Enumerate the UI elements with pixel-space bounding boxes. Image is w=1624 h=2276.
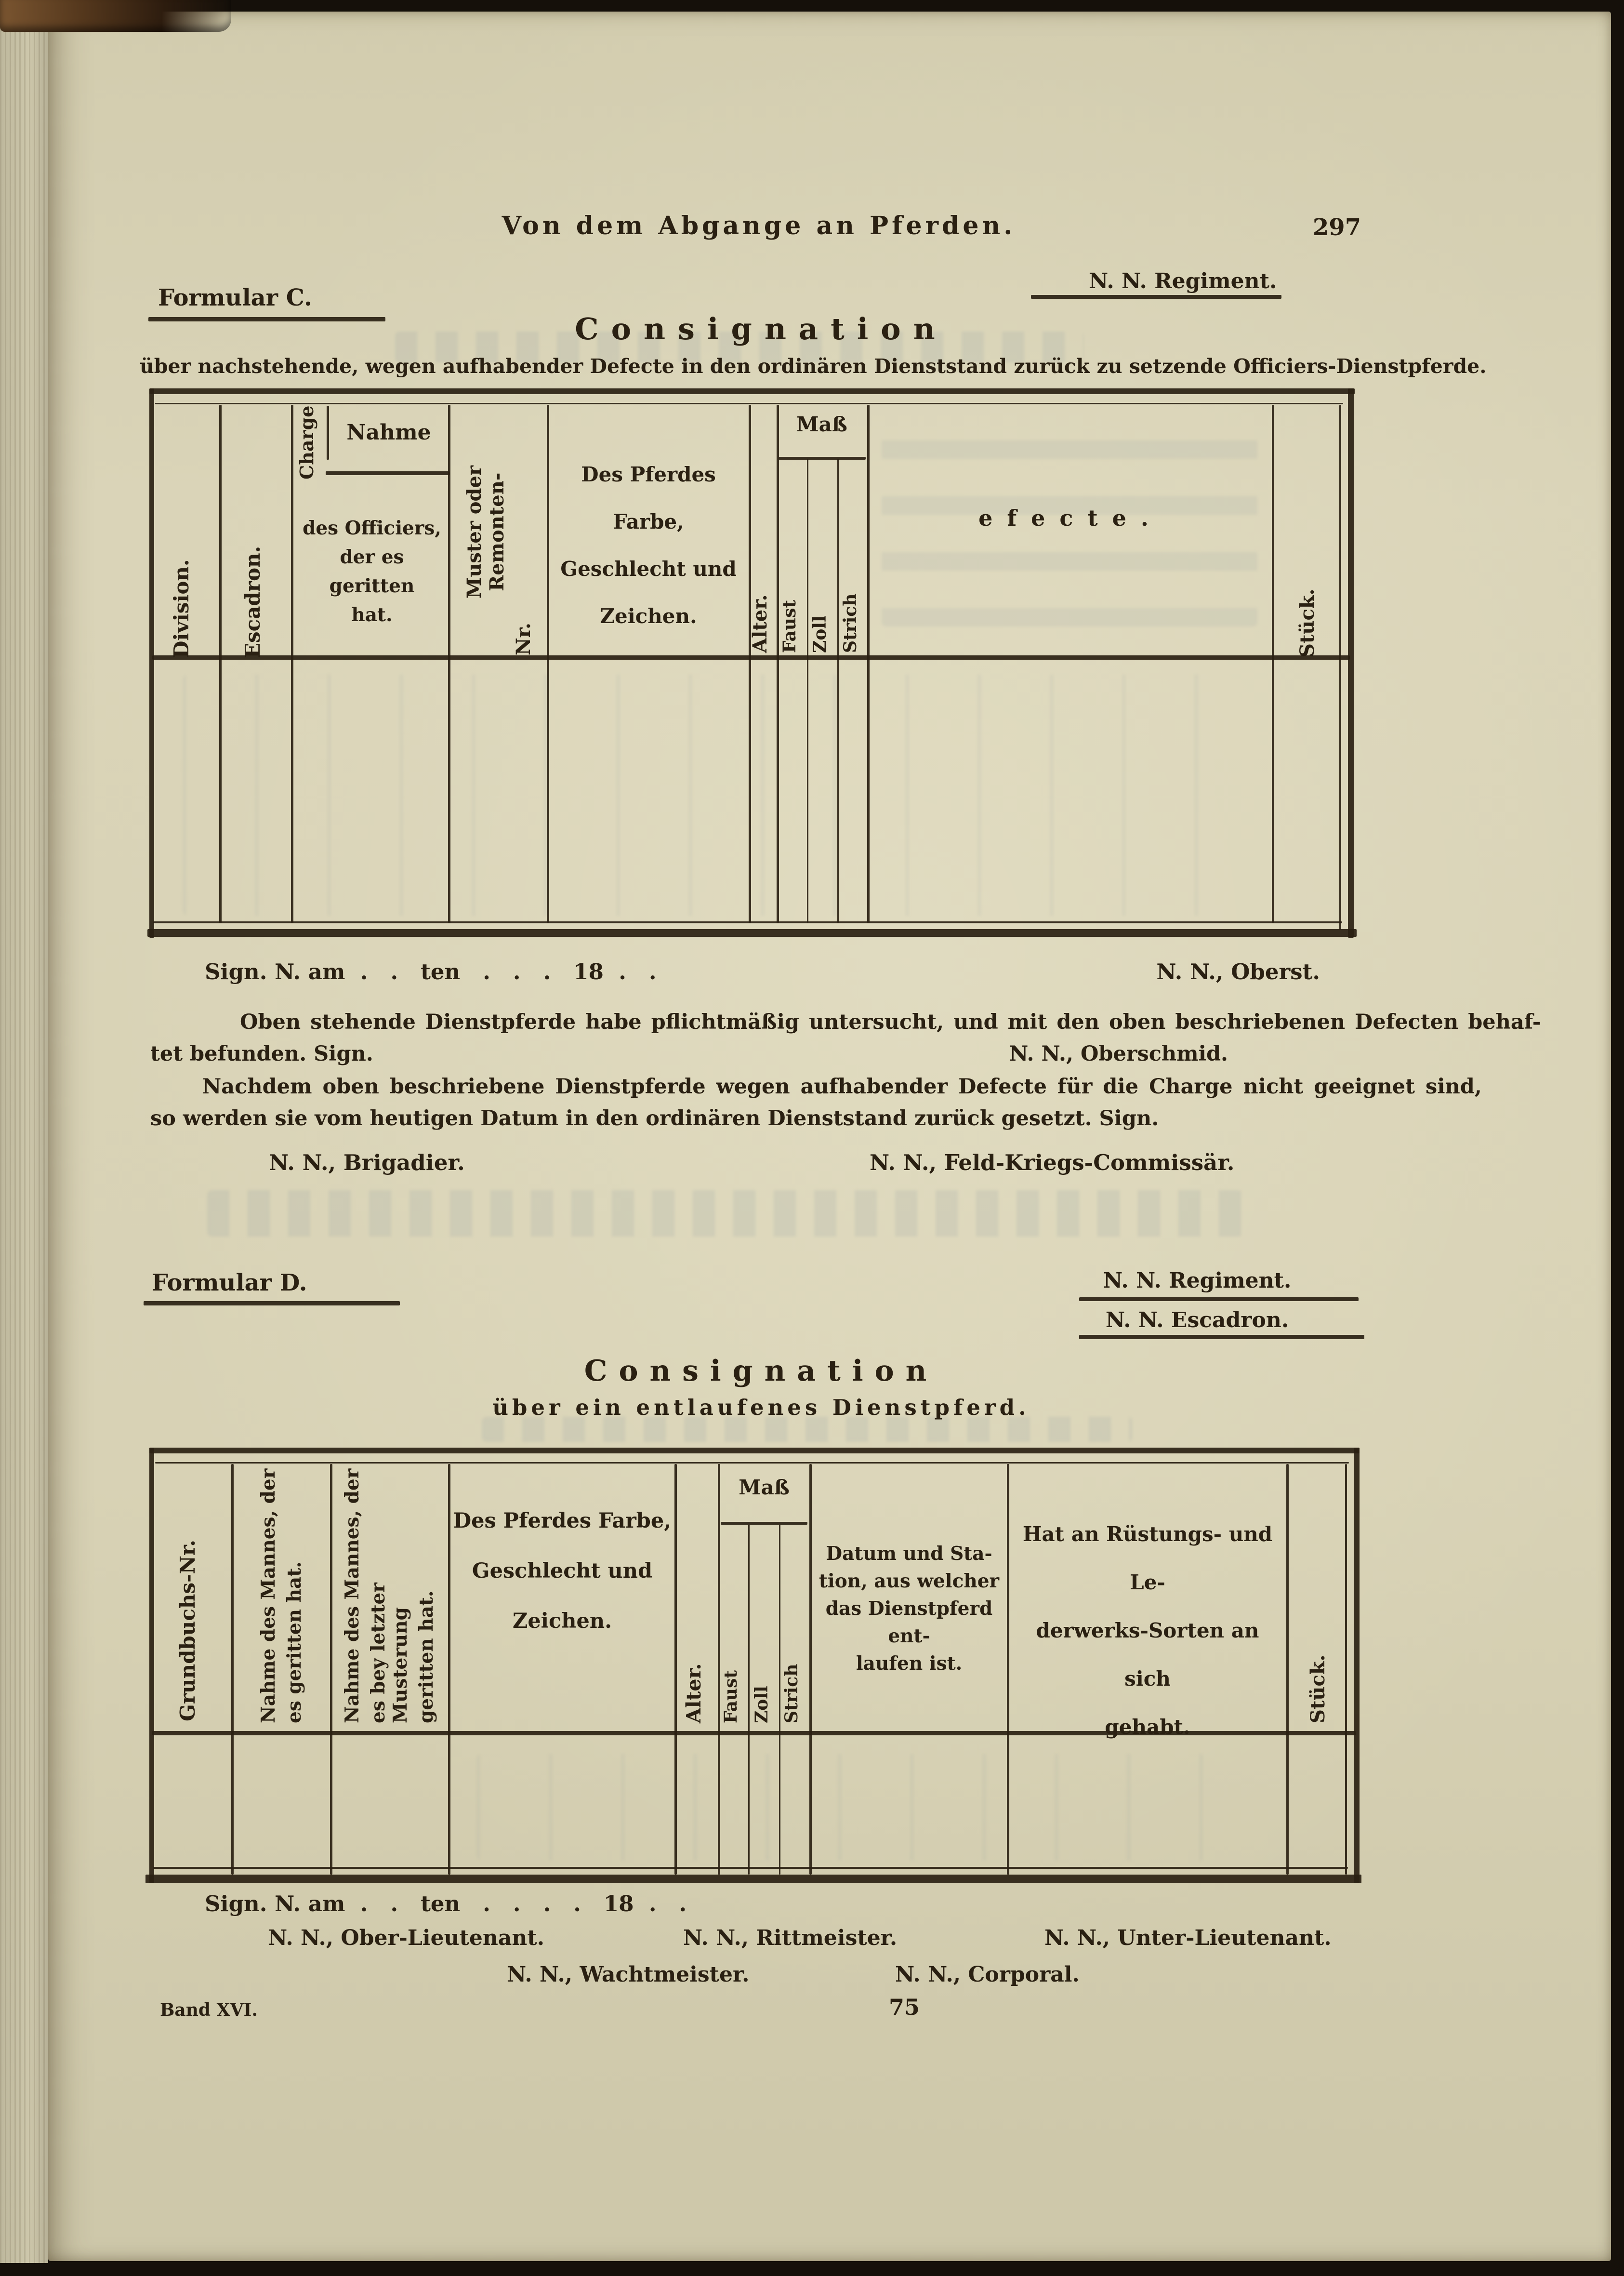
col-farbe-d-line: Des Pferdes Farbe, <box>452 1496 673 1546</box>
sign-name-commissar: N. N., Feld-Kriegs-Commissär. <box>870 1150 1234 1175</box>
col-farbe-d-line: Geschlecht und <box>452 1546 673 1596</box>
table-c-col-rule <box>749 405 751 923</box>
table-d-border-bottom <box>145 1875 1361 1883</box>
paragraph-c1-line1: Oben stehende Dienstpferde habe pflichtm… <box>240 1010 1541 1034</box>
table-c-border-right <box>1348 388 1354 938</box>
col-mann1-line: Nahme des Mannes, der <box>257 1468 279 1723</box>
sign-name-brigadier: N. N., Brigadier. <box>269 1150 465 1175</box>
col-nahme: Nahme <box>330 420 448 445</box>
col-ruestung-line: gehabt. <box>1011 1703 1284 1751</box>
formular-d-underline <box>144 1301 400 1305</box>
formular-c-title: Consignation <box>530 311 992 346</box>
sign-name-wachtmeister: N. N., Wachtmeister. <box>507 1962 749 1987</box>
table-d-mass-underline <box>721 1522 807 1525</box>
table-d-mass-subrule <box>779 1525 780 1875</box>
table-d-col-rule <box>1007 1464 1009 1875</box>
table-d-border-left <box>149 1448 154 1883</box>
table-c-mass-underline <box>779 457 866 460</box>
col-zoll-d: Zoll <box>752 1590 778 1726</box>
table-c-charge-divider <box>327 406 329 460</box>
formular-d-subtitle: über ein entlaufenes Dienstpferd. <box>337 1395 1185 1420</box>
col-mann2: Nahme des Mannes, der es bey letzter Mus… <box>333 1468 445 1723</box>
sign-name-unterlieutenant: N. N., Unter-Lieutenant. <box>1044 1926 1332 1950</box>
binding-leather <box>0 0 231 32</box>
bleedthrough-smudge <box>477 1754 1257 1860</box>
col-datum-line: das Dienstpferd ent- <box>813 1595 1005 1650</box>
table-d-border-right-inner <box>1345 1464 1347 1875</box>
col-ruestung-line: Hat an Rüstungs- und Le- <box>1011 1510 1284 1607</box>
col-grundbuch: Grundbuchs-Nr. <box>176 1473 205 1730</box>
sign-name-corporal: N. N., Corporal. <box>895 1962 1080 1987</box>
table-c-border-bottom <box>147 929 1357 937</box>
bleedthrough-smudge <box>183 675 1257 916</box>
scanned-book-page: Von dem Abgange an Pferden. 297 Formular… <box>0 0 1624 2276</box>
col-division: Division. <box>170 413 198 665</box>
col-nahme-sub: des Officiers, der es geritten hat. <box>296 514 448 629</box>
col-mass: Maß <box>777 413 867 436</box>
escadron-d-underline <box>1079 1335 1364 1339</box>
table-c-col-rule <box>219 405 222 923</box>
table-c-border-top-inner <box>155 403 1343 404</box>
table-c-col-rule <box>867 405 870 923</box>
formular-c-underline <box>148 317 385 321</box>
footer-volume: Band XVI. <box>160 2000 258 2020</box>
table-c-nahme-underline <box>326 471 450 475</box>
col-farbe-line: Des Pferdes Farbe, <box>549 451 748 546</box>
table-d-border-top <box>149 1448 1360 1453</box>
sign-name-oberschmid: N. N., Oberschmid. <box>1009 1042 1228 1066</box>
col-strich-d: Strich <box>781 1590 807 1726</box>
page-edges-gutter <box>0 22 48 2263</box>
table-d-col-rule <box>448 1464 450 1875</box>
page-number: 297 <box>1296 214 1378 241</box>
col-ruestung-line: derwerks-Sorten an sich <box>1011 1607 1284 1703</box>
sign-name-oberst: N. N., Oberst. <box>1156 959 1320 985</box>
table-d-mass-subrule <box>748 1525 750 1875</box>
col-alter: Alter. <box>749 547 777 656</box>
table-d-col-rule <box>674 1464 677 1875</box>
col-datum-line: laufen ist. <box>813 1650 1005 1677</box>
col-mann2-line: Nahme des Mannes, der <box>341 1468 363 1723</box>
table-c-col-rule <box>448 405 450 923</box>
table-d-col-rule <box>1286 1464 1289 1875</box>
col-stueck-d: Stück. <box>1307 1632 1334 1728</box>
table-c-border-bottom-inner <box>153 921 1342 923</box>
col-defecte: efecte. <box>870 505 1272 531</box>
formular-c-label: Formular C. <box>158 284 312 311</box>
table-c-mass-subrule <box>837 459 839 923</box>
table-c-border-right-inner <box>1339 405 1341 930</box>
table-d-border-bottom-inner <box>153 1867 1348 1869</box>
col-farbe-d: Des Pferdes Farbe, Geschlecht und Zeiche… <box>452 1496 673 1646</box>
regiment-d-underline <box>1079 1297 1359 1301</box>
paragraph-c2-line2: so werden sie vom heutigen Datum in den … <box>150 1106 1159 1131</box>
table-c-mass-subrule <box>807 459 808 923</box>
col-strich: Strich <box>840 552 866 656</box>
regiment-underline <box>1031 295 1281 299</box>
table-c-border-top <box>149 388 1355 394</box>
col-mass-d: Maß <box>719 1476 809 1499</box>
footer-sheet-number: 75 <box>889 1994 920 2020</box>
col-datum-line: tion, aus welcher <box>813 1568 1005 1595</box>
col-zoll: Zoll <box>810 552 836 656</box>
formular-d-escadron: N. N. Escadron. <box>1103 1308 1291 1332</box>
sign-name-rittmeister: N. N., Rittmeister. <box>683 1926 897 1950</box>
table-c-border-left <box>149 388 154 938</box>
col-nahme-sub-line: hat. <box>296 600 448 629</box>
sign-line-d: Sign. N. am . . ten . . . . 18 . . <box>205 1891 687 1917</box>
col-mann2-line: es bey letzter Musterung <box>367 1468 411 1723</box>
col-faust: Faust <box>779 552 805 656</box>
table-d-border-top-inner <box>155 1462 1349 1464</box>
formular-d-title: Consignation <box>530 1354 992 1388</box>
table-d-col-rule <box>231 1464 234 1875</box>
col-ruestung: Hat an Rüstungs- und Le- derwerks-Sorten… <box>1011 1510 1284 1751</box>
running-header: Von dem Abgange an Pferden. <box>458 211 1060 240</box>
col-mann1: Nahme des Mannes, der es geritten hat. <box>235 1468 328 1723</box>
paragraph-c2-line1: Nachdem oben beschriebene Dienstpferde w… <box>202 1075 1482 1099</box>
col-muster-remonten-line: Muster oder Remonten- <box>463 409 508 655</box>
table-c-header-rule <box>152 655 1350 660</box>
col-farbe-d-line: Zeichen. <box>452 1596 673 1646</box>
col-alter-d: Alter. <box>682 1531 710 1727</box>
table-c-col-rule <box>1272 405 1274 923</box>
col-charge: Charge <box>296 403 325 531</box>
col-nahme-sub-line: der es geritten <box>296 543 448 600</box>
table-d-col-rule <box>718 1464 720 1875</box>
col-muster-nr: Nr. <box>512 409 535 660</box>
sign-line-c: Sign. N. am . . ten . . . 18 . . <box>205 959 657 985</box>
col-mann1-line: es geritten hat. <box>283 1468 305 1723</box>
col-nahme-sub-line: des Officiers, <box>296 514 448 543</box>
formular-d-label: Formular D. <box>152 1269 307 1296</box>
col-mann2-line: geritten hat. <box>415 1468 437 1723</box>
formular-c-regiment: N. N. Regiment. <box>1089 269 1272 293</box>
formular-c-subtitle: über nachstehende, wegen aufhabender Def… <box>140 355 1373 378</box>
bleedthrough-smudge <box>207 1190 1243 1237</box>
col-datum: Datum und Sta- tion, aus welcher das Die… <box>813 1540 1005 1677</box>
col-muster-remonten: Muster oder Remonten- Nr. <box>453 409 544 655</box>
sign-name-oberlieutenant: N. N., Ober-Lieutenant. <box>268 1926 544 1950</box>
col-farbe: Des Pferdes Farbe, Geschlecht und Zeiche… <box>549 451 748 640</box>
col-farbe-line: Geschlecht und <box>549 546 748 593</box>
paragraph-c1-line2: tet befunden. Sign. <box>150 1042 373 1066</box>
table-c-col-rule <box>291 405 293 923</box>
table-c-col-rule <box>777 405 779 923</box>
col-stueck: Stück. <box>1296 534 1325 663</box>
col-escadron: Escadron. <box>241 413 270 665</box>
bleedthrough-smudge <box>482 1417 1132 1442</box>
table-d-border-right <box>1354 1448 1360 1883</box>
table-d-col-rule <box>330 1464 332 1875</box>
formular-d-regiment: N. N. Regiment. <box>1103 1268 1291 1293</box>
col-datum-line: Datum und Sta- <box>813 1540 1005 1568</box>
col-faust-d: Faust <box>721 1590 747 1726</box>
table-d-col-rule <box>809 1464 812 1875</box>
col-farbe-line: Zeichen. <box>549 593 748 640</box>
